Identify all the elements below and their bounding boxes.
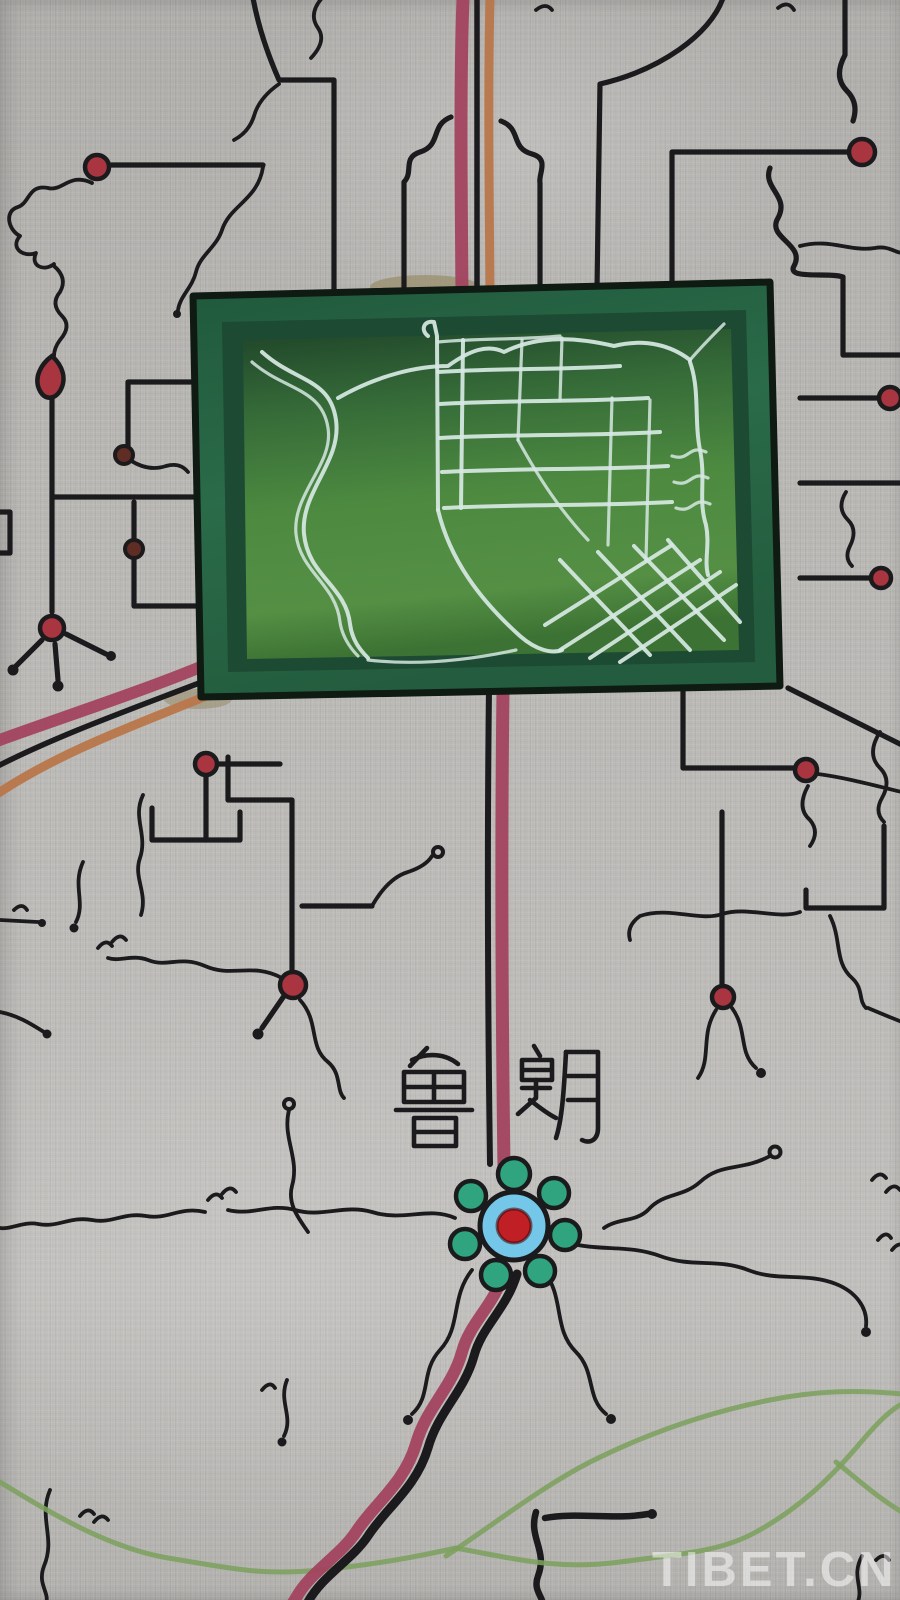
route-squiggle xyxy=(234,84,279,140)
route-tree xyxy=(404,117,451,289)
route-squiggle xyxy=(830,916,866,1008)
route-squiggle xyxy=(542,1268,606,1414)
node-dot xyxy=(849,139,875,165)
route-line xyxy=(0,906,38,922)
flower-petal xyxy=(456,1181,486,1211)
route-squiggle xyxy=(841,492,853,566)
route-bracket xyxy=(0,512,10,553)
route-diagonal xyxy=(788,688,900,745)
circuit-network xyxy=(0,0,900,1600)
route-line xyxy=(839,0,855,121)
route-arc xyxy=(597,0,723,289)
node-teardrop xyxy=(37,356,63,398)
street-vertical xyxy=(461,340,463,508)
route-cloud xyxy=(9,180,92,268)
watermark-text: TIBET.CN xyxy=(652,1543,897,1597)
node-dot xyxy=(195,753,217,775)
route-bracket xyxy=(128,382,198,446)
route-line xyxy=(545,1514,648,1518)
road-black-south xyxy=(488,690,490,1164)
route-line xyxy=(806,826,884,908)
route-squiggle xyxy=(565,1242,866,1326)
route-squiggle xyxy=(873,732,887,822)
route-squiggle xyxy=(604,1156,770,1228)
flower-petal xyxy=(498,1158,530,1190)
node-dot xyxy=(795,759,817,781)
flower-petal xyxy=(525,1256,555,1286)
tick-marks xyxy=(868,1008,900,1192)
flower-center xyxy=(497,1209,531,1243)
route-squiggle xyxy=(108,958,282,978)
route-line xyxy=(843,277,900,355)
map-artwork: 鲁 朗 TIBET.CN xyxy=(0,0,900,1600)
route-bracket xyxy=(134,502,200,606)
node-dot xyxy=(280,972,306,998)
road-crimson-south xyxy=(502,690,504,1168)
flower-petal xyxy=(550,1220,580,1250)
node-dot xyxy=(712,986,734,1008)
route-squiggle xyxy=(178,167,263,310)
flower-petal xyxy=(539,1178,569,1208)
tick-marks xyxy=(98,936,126,948)
route-squiggle xyxy=(300,1000,344,1098)
node-dot xyxy=(85,155,109,179)
inset-map-frame xyxy=(193,282,780,697)
route-squiggle xyxy=(311,0,322,58)
route-zigzag xyxy=(769,168,843,277)
tick-marks xyxy=(536,4,794,10)
route-line xyxy=(228,757,292,970)
glyph-lang: 朗 xyxy=(518,1046,598,1142)
route-squiggle xyxy=(262,1380,287,1436)
node-dot xyxy=(879,387,900,409)
node-dot-dark xyxy=(115,446,133,464)
route-squiggle xyxy=(372,856,432,906)
node-spokes xyxy=(16,634,106,680)
glyph-lu: 鲁 xyxy=(396,1048,472,1146)
flower-petal xyxy=(450,1229,480,1259)
node-dot-dark xyxy=(125,540,143,558)
tick-marks xyxy=(80,1510,108,1522)
route-squiggle xyxy=(228,1208,455,1218)
route-squiggle xyxy=(138,795,143,915)
route-squiggle xyxy=(534,1512,543,1600)
road-crimson-top xyxy=(461,0,463,289)
route-squiggle xyxy=(629,911,800,940)
flower-petal xyxy=(481,1260,511,1290)
tick-marks xyxy=(208,1188,236,1200)
road-orange-top xyxy=(489,0,490,291)
route-squiggle xyxy=(0,1210,205,1228)
route-line xyxy=(0,1012,44,1032)
node-spoke xyxy=(262,996,284,1028)
route-line xyxy=(683,690,795,768)
green-line-branch xyxy=(836,1462,900,1512)
route-squiggle xyxy=(800,243,900,252)
road-orange-diagonal xyxy=(0,694,211,796)
route-squiggle xyxy=(54,266,67,356)
route-squiggle xyxy=(802,786,815,846)
node-dot xyxy=(40,616,64,640)
route-squiggle xyxy=(130,460,188,472)
painting-canvas: 鲁朗 xyxy=(0,0,900,1600)
route-tree xyxy=(501,121,542,289)
route-squiggle xyxy=(76,862,83,922)
tick-marks xyxy=(878,1234,900,1250)
node-dot xyxy=(871,568,891,588)
route-line xyxy=(672,152,850,286)
route-bracket xyxy=(152,808,240,840)
route-squiggle xyxy=(698,1008,756,1078)
